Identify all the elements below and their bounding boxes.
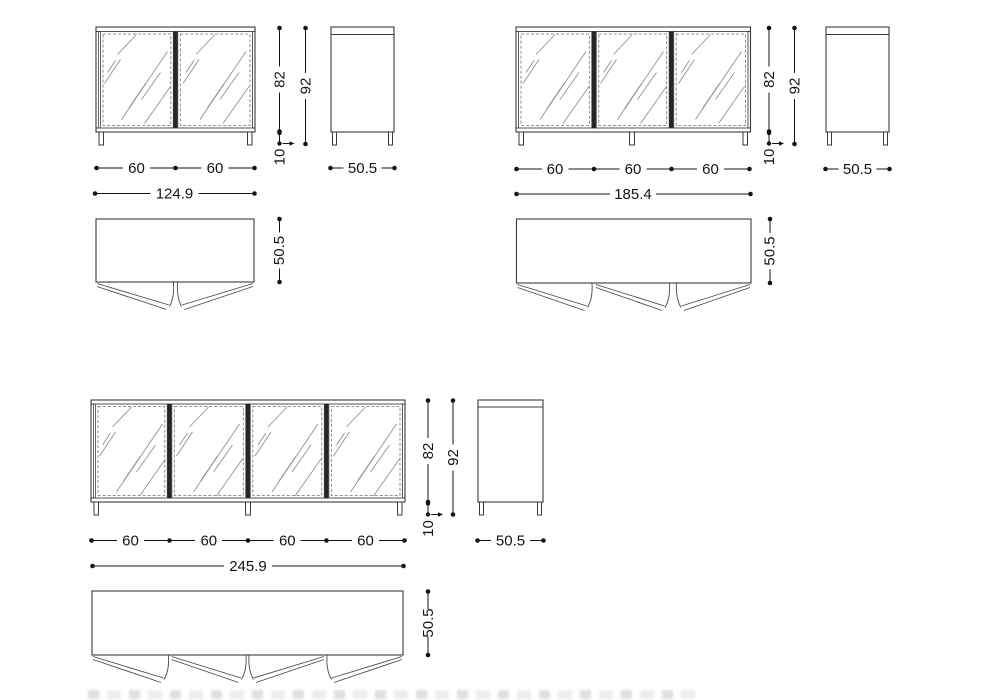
door-swing [518, 284, 751, 311]
dim-door-widths: 60 60 60 [514, 161, 752, 178]
dim-label-door-width: 60 [200, 532, 217, 549]
dim-label-depth: 50.5 [843, 161, 872, 178]
door-divider [669, 32, 674, 129]
cabinet-side [826, 27, 889, 132]
door-divider [592, 32, 597, 129]
dim-body-height: 82 [761, 26, 778, 134]
technical-drawing-sheet: 82 92 10 60 60 124.9 50.5 [0, 0, 1000, 700]
dim-door-widths: 60 60 [94, 160, 257, 177]
dim-label-leg-height: 10 [761, 149, 778, 166]
dim-label-plan-depth: 50.5 [420, 608, 437, 637]
dim-label-plan-depth: 50.5 [762, 236, 779, 265]
dim-total-width: 124.9 [93, 185, 257, 202]
leg [398, 502, 403, 515]
leg [828, 132, 832, 145]
dim-label-total-width: 124.9 [156, 185, 194, 202]
dim-label-total-height: 92 [786, 78, 803, 95]
dim-door-widths: 60 60 60 60 [89, 532, 407, 549]
side-view-3door [826, 27, 889, 145]
dim-depth-plan: 50.5 [420, 589, 437, 657]
dim-label-body-height: 82 [271, 71, 288, 88]
plan-view-3door [517, 219, 752, 311]
dim-body-height: 82 [271, 26, 288, 134]
dim-total-height: 92 [786, 26, 803, 147]
dim-leg-height: 10 [420, 501, 443, 537]
dim-label-leg-height: 10 [271, 149, 288, 166]
set-3-door: 82 92 10 60 60 60 185.4 [514, 26, 892, 311]
dim-depth-plan: 50.5 [271, 217, 288, 285]
dim-total-height: 92 [445, 398, 462, 517]
front-view-2door [96, 27, 255, 145]
dim-label-leg-height: 10 [420, 520, 437, 537]
dim-label-total-width: 245.9 [229, 558, 267, 575]
door-divider [246, 404, 251, 498]
cabinet-plan [92, 591, 403, 655]
set-2-door: 82 92 10 60 60 124.9 50.5 [93, 26, 397, 310]
side-view-4door [478, 400, 543, 515]
leg [538, 502, 542, 515]
front-view-4door [91, 400, 405, 515]
leg [389, 132, 393, 145]
dim-depth-plan: 50.5 [762, 217, 779, 286]
leg [630, 132, 635, 145]
set-4-door: 82 92 10 60 60 60 60 245.9 [89, 398, 546, 682]
door-divider [324, 404, 329, 498]
side-view-2door [331, 27, 394, 145]
dim-label-body-height: 82 [420, 443, 437, 460]
dim-label-door-width: 60 [357, 532, 374, 549]
leg [884, 132, 888, 145]
dim-label-door-width: 60 [547, 161, 564, 178]
leg [480, 502, 484, 515]
plan-view-2door [96, 219, 254, 310]
drawing-svg: 82 92 10 60 60 124.9 50.5 [0, 0, 1000, 700]
leg [99, 132, 104, 145]
front-view-3door [516, 27, 751, 145]
dim-label-door-width: 60 [122, 532, 139, 549]
leg [94, 502, 99, 515]
dim-label-depth: 50.5 [348, 160, 377, 177]
cabinet-side [331, 27, 394, 132]
dim-label-plan-depth: 50.5 [271, 236, 288, 265]
dim-label-total-height: 92 [445, 449, 462, 466]
dim-leg-height: 10 [761, 131, 784, 166]
cabinet-body [516, 27, 751, 132]
dim-label-total-width: 185.4 [614, 186, 652, 203]
cabinet-side [478, 400, 543, 502]
door-swing [97, 283, 253, 310]
plan-view-4door [92, 591, 403, 683]
dim-label-door-width: 60 [625, 161, 642, 178]
dim-label-body-height: 82 [761, 71, 778, 88]
dim-body-height: 82 [420, 398, 437, 504]
leg [519, 132, 524, 145]
dim-label-door-width: 60 [207, 160, 224, 177]
dim-total-width: 185.4 [514, 186, 753, 203]
leg [333, 132, 337, 145]
dim-label-door-width: 60 [702, 161, 719, 178]
door-swing [93, 656, 402, 683]
leg [743, 132, 748, 145]
dim-depth-side: 50.5 [328, 160, 397, 177]
dim-label-depth: 50.5 [496, 532, 525, 549]
dim-total-width: 245.9 [90, 558, 406, 575]
dim-label-door-width: 60 [279, 532, 296, 549]
dim-label-door-width: 60 [128, 160, 145, 177]
dim-depth-side: 50.5 [475, 532, 546, 549]
dim-label-total-height: 92 [297, 78, 314, 95]
cabinet-plan [96, 219, 254, 282]
cropped-text-artifact [88, 690, 696, 699]
leg [246, 502, 251, 515]
dim-depth-side: 50.5 [823, 161, 892, 178]
door-divider [167, 404, 172, 498]
door-divider [173, 32, 178, 129]
cabinet-plan [517, 219, 752, 283]
leg [248, 132, 253, 145]
dim-leg-height: 10 [271, 131, 294, 166]
dim-total-height: 92 [297, 26, 314, 147]
